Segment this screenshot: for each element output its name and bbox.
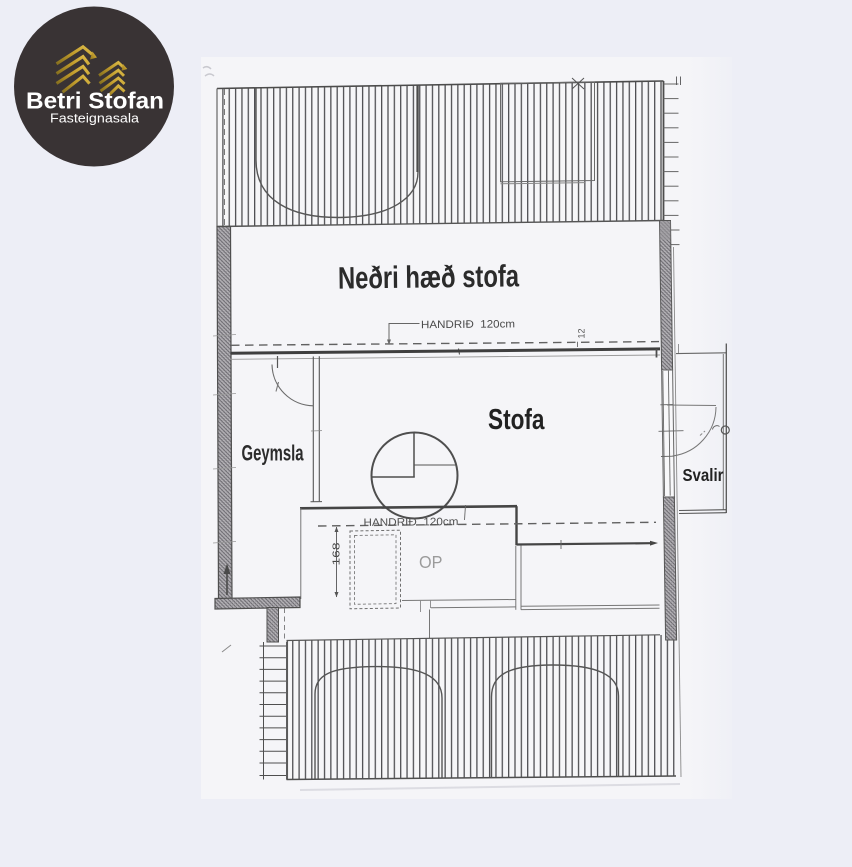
svg-text:Betri Stofan: Betri Stofan xyxy=(26,88,164,114)
svg-text:Svalir: Svalir xyxy=(683,465,724,485)
svg-text:Geymsla: Geymsla xyxy=(242,441,305,466)
svg-text:Neðri hæð stofa: Neðri hæð stofa xyxy=(338,258,520,295)
svg-text:HANDRIÐ 120cm: HANDRIÐ 120cm xyxy=(363,516,458,529)
svg-text:Fasteignasala: Fasteignasala xyxy=(50,111,140,126)
svg-text:12: 12 xyxy=(577,328,587,338)
svg-text:Stofa: Stofa xyxy=(488,404,545,436)
svg-text:HANDRIÐ 120cm: HANDRIÐ 120cm xyxy=(421,318,515,331)
svg-text:OP: OP xyxy=(419,552,443,572)
